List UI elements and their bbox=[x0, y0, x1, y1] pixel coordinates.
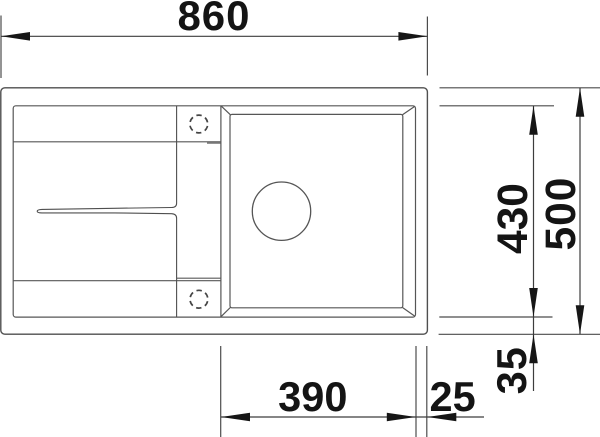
svg-text:430: 430 bbox=[490, 183, 537, 254]
svg-text:35: 35 bbox=[488, 346, 535, 394]
svg-text:25: 25 bbox=[430, 373, 476, 420]
svg-text:500: 500 bbox=[538, 177, 585, 251]
svg-text:860: 860 bbox=[177, 0, 250, 39]
svg-text:390: 390 bbox=[278, 373, 347, 420]
